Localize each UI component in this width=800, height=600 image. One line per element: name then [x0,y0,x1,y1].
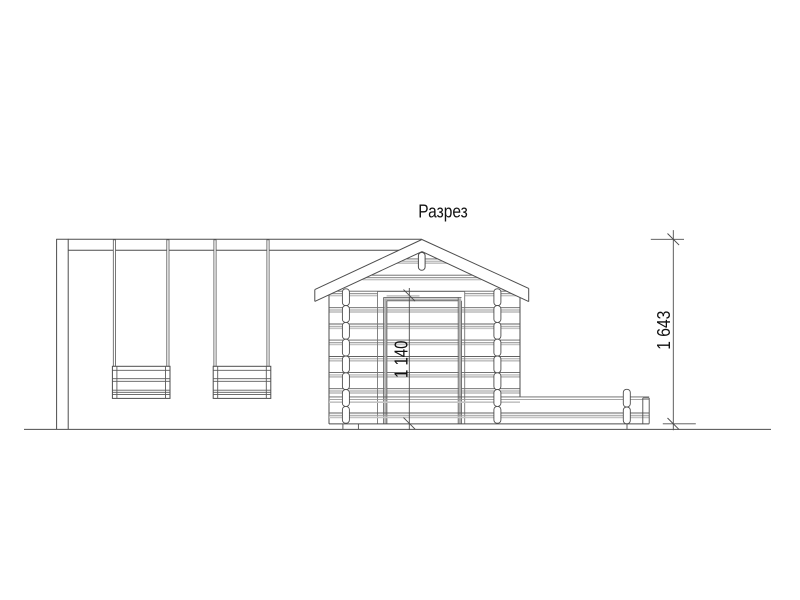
svg-text:1 643: 1 643 [654,311,675,350]
svg-text:Разрез: Разрез [418,201,468,222]
svg-text:1 140: 1 140 [391,341,412,378]
